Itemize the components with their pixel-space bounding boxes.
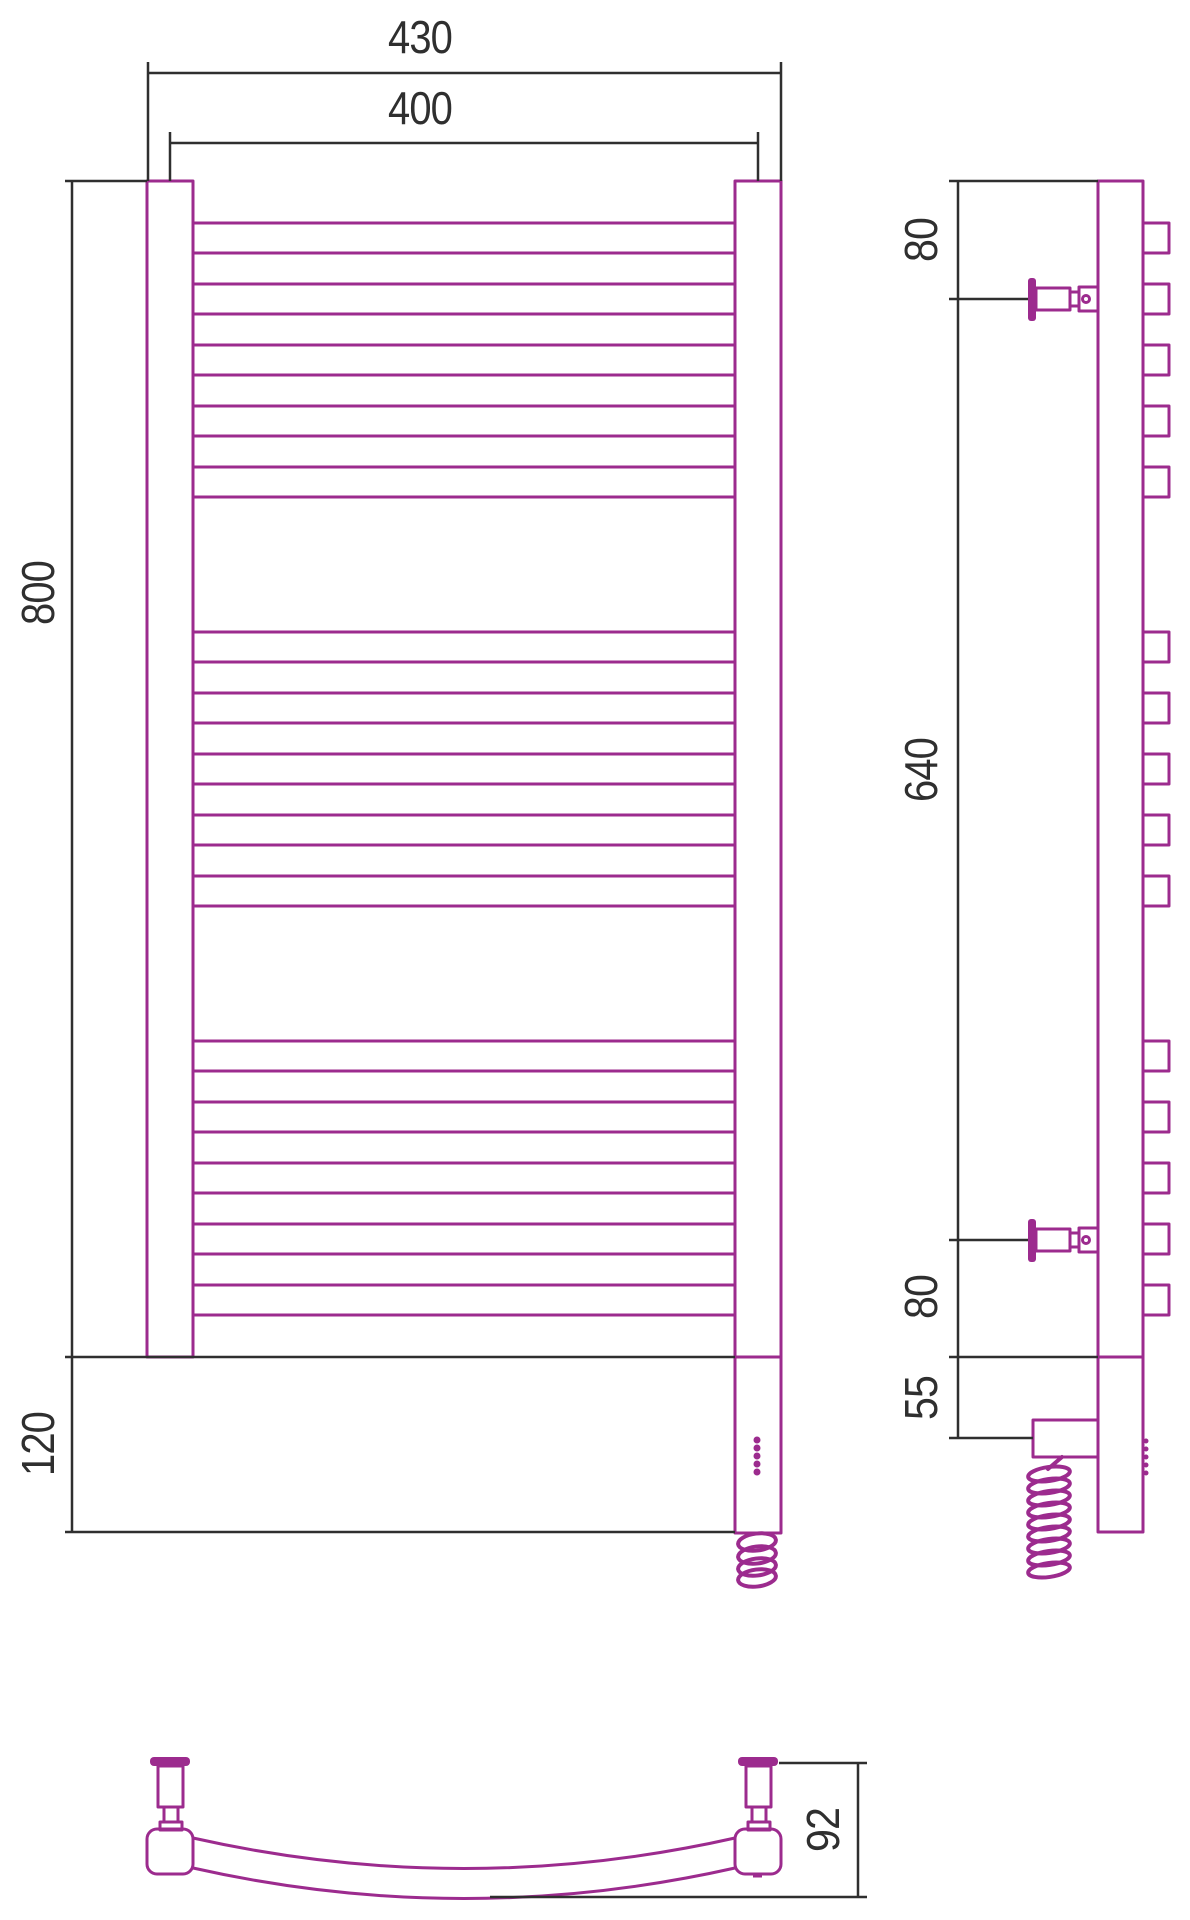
indicator-dot <box>754 1445 761 1452</box>
dim-label-front-inner-width: 400 <box>388 82 452 134</box>
rung-tube <box>193 754 735 784</box>
rung-tube <box>193 632 735 662</box>
dim-label-front-outer-width: 430 <box>388 11 452 63</box>
rung-tube <box>193 693 735 723</box>
curved-tube-front-edge <box>193 1838 735 1869</box>
rung-end <box>1143 467 1169 497</box>
rung-tube <box>193 1041 735 1071</box>
side-wall-bracket-bottom <box>1028 1219 1098 1262</box>
rung-tube <box>193 815 735 845</box>
bracket-screw <box>1083 296 1090 303</box>
dim-label-side-mount-span: 640 <box>895 738 947 802</box>
coil-loop <box>737 1567 777 1589</box>
rung-tube <box>193 284 735 314</box>
indicator-dot <box>1144 1455 1149 1460</box>
rung-end <box>1143 632 1169 662</box>
bracket-arm <box>1036 1229 1070 1251</box>
indicator-dot <box>1144 1439 1149 1444</box>
rung-end <box>1143 693 1169 723</box>
bottom-left-fitting <box>147 1829 193 1874</box>
bottom-left-bracket <box>150 1757 190 1830</box>
rung-end <box>1143 223 1169 253</box>
indicator-dot <box>754 1461 761 1468</box>
rung-tube <box>193 406 735 436</box>
bracket-arm <box>746 1766 771 1807</box>
rung-tube <box>193 1163 735 1193</box>
bracket-neck <box>164 1807 178 1822</box>
side-heating-unit-box <box>1033 1420 1098 1457</box>
dim-label-bottom-depth: 92 <box>797 1808 849 1852</box>
bottom-view <box>147 1757 781 1899</box>
technical-drawing-page: 430 400 800 120 80 640 80 55 92 <box>0 0 1190 1920</box>
indicator-dot <box>1144 1447 1149 1452</box>
front-power-cord-coil <box>737 1531 777 1589</box>
dimension-annotations: 430 400 800 120 80 640 80 55 92 <box>12 11 1098 1897</box>
front-view <box>147 181 781 1589</box>
rung-end <box>1143 1041 1169 1071</box>
curved-tube-back-edge <box>193 1868 735 1899</box>
bracket-arm <box>1036 288 1070 310</box>
rung-end <box>1143 1163 1169 1193</box>
rung-end <box>1143 1224 1169 1254</box>
dim-label-side-bottom-offset: 80 <box>895 1275 947 1319</box>
dim-label-front-height: 800 <box>12 561 64 625</box>
rung-end <box>1143 345 1169 375</box>
bracket-neck <box>752 1807 766 1822</box>
bottom-right-fitting <box>735 1829 781 1874</box>
side-rung-ends <box>1143 223 1169 1315</box>
rung-end <box>1143 1102 1169 1132</box>
front-rung-tubes <box>193 223 735 1315</box>
indicator-dot <box>754 1437 761 1444</box>
rung-tube <box>193 1102 735 1132</box>
rung-end <box>1143 815 1169 845</box>
rung-tube <box>193 1285 735 1315</box>
indicator-dot <box>754 1453 761 1460</box>
dim-label-front-bottom-section: 120 <box>12 1412 64 1476</box>
rung-tube <box>193 345 735 375</box>
front-indicator-dots <box>754 1437 761 1476</box>
rung-tube <box>193 467 735 497</box>
indicator-dot <box>1144 1463 1149 1468</box>
rung-end <box>1143 754 1169 784</box>
side-post-profile <box>1098 181 1143 1532</box>
rung-tube <box>193 1224 735 1254</box>
rung-tube <box>193 876 735 906</box>
side-power-cord-coil <box>1027 1457 1071 1580</box>
rung-end <box>1143 284 1169 314</box>
bracket-arm <box>158 1766 183 1807</box>
towel-rail-drawing: 430 400 800 120 80 640 80 55 92 <box>0 0 1190 1920</box>
side-wall-bracket-top <box>1028 278 1098 321</box>
bracket-screw <box>1083 1237 1090 1244</box>
rung-end <box>1143 406 1169 436</box>
indicator-dot <box>1144 1471 1149 1476</box>
dim-label-side-top-offset: 80 <box>895 218 947 262</box>
rung-end <box>1143 1285 1169 1315</box>
front-right-post <box>735 181 781 1357</box>
rung-end <box>1143 876 1169 906</box>
rung-tube <box>193 223 735 253</box>
dim-label-side-element-offset: 55 <box>895 1376 947 1420</box>
bottom-right-bracket <box>738 1757 778 1830</box>
front-left-post <box>147 181 193 1357</box>
side-view <box>1027 181 1169 1580</box>
indicator-dot <box>754 1469 761 1476</box>
